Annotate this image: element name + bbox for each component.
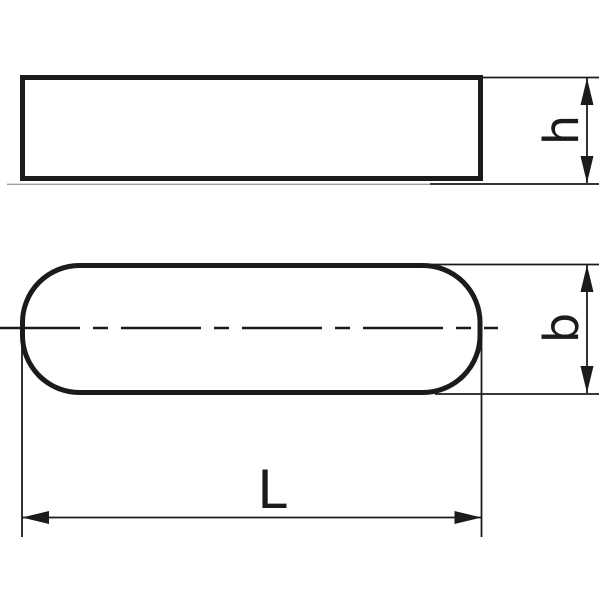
l-arrow-right-icon bbox=[455, 511, 482, 524]
h-arrow-down-icon bbox=[581, 156, 594, 183]
l-dimension-label: L bbox=[257, 460, 287, 521]
b-arrow-up-icon bbox=[581, 265, 594, 292]
key-side-view-outline bbox=[23, 78, 481, 179]
technical-drawing-canvas: h b L bbox=[0, 0, 600, 600]
plan-view: b L bbox=[0, 265, 599, 538]
h-arrow-up-icon bbox=[581, 78, 594, 105]
l-arrow-left-icon bbox=[22, 511, 49, 524]
key-dimension-diagram: h b L bbox=[0, 0, 600, 600]
h-dimension-label: h bbox=[534, 115, 590, 145]
side-view: h bbox=[7, 78, 599, 185]
b-arrow-down-icon bbox=[581, 366, 594, 393]
b-dimension-label: b bbox=[534, 313, 590, 343]
